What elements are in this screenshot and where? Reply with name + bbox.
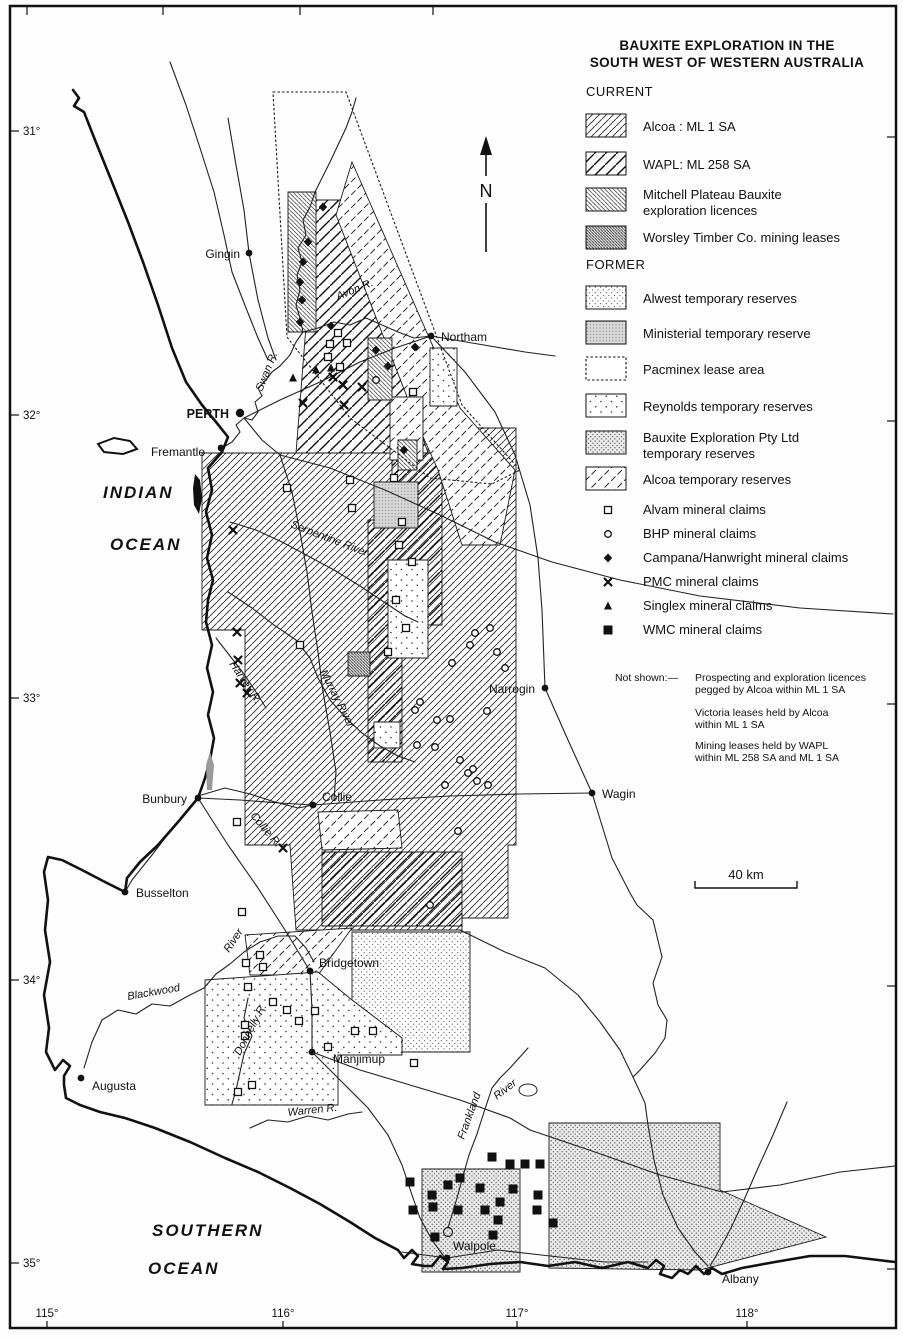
legend-item: Alcoa temporary reserves <box>586 467 792 490</box>
claim-symbol-wmc <box>506 1160 515 1169</box>
legend-claim-label: Campana/Hanwright mineral claims <box>643 550 849 565</box>
claim-symbol-alvam <box>385 649 392 656</box>
legend-item-label: Worsley Timber Co. mining leases <box>643 230 840 245</box>
legend-item-label: Ministerial temporary reserve <box>643 326 811 341</box>
claim-symbol-alvam <box>411 1060 418 1067</box>
legend-item: Alwest temporary reserves <box>586 286 797 309</box>
claim-symbol-alvam <box>235 1089 242 1096</box>
claim-symbol-wmc <box>456 1174 465 1183</box>
scale-bar-label: 40 km <box>728 867 763 882</box>
claim-symbol-alvam <box>409 559 416 566</box>
claim-symbol-bhp <box>474 778 481 785</box>
legend-item-label: Alcoa temporary reserves <box>643 472 792 487</box>
river-label: River <box>222 926 247 955</box>
claim-symbol-pmc <box>280 845 287 852</box>
scale-bar: 40 km <box>695 867 797 888</box>
claim-symbol-alvam <box>327 341 334 348</box>
claim-symbol-campana <box>604 554 612 563</box>
town-dot <box>246 250 253 257</box>
claim-symbol-bhp <box>494 649 501 656</box>
legend-claim-label: Alvam mineral claims <box>643 502 766 517</box>
legend-claim-label: BHP mineral claims <box>643 526 757 541</box>
claim-symbol-wmc <box>604 626 613 635</box>
claim-symbol-bhp <box>412 707 419 714</box>
claim-symbol-bhp <box>605 531 612 538</box>
town-dot <box>122 889 129 896</box>
legend-claim-label: PMC mineral claims <box>643 574 759 589</box>
claim-symbol-bhp <box>434 717 441 724</box>
town-dot <box>195 795 202 802</box>
legend-swatch <box>586 321 626 344</box>
ocean-label: OCEAN <box>148 1259 219 1278</box>
claim-symbol-wmc <box>476 1184 485 1193</box>
garden-island <box>193 474 202 514</box>
town-label: Bunbury <box>142 792 187 806</box>
legend-section-heading: FORMER <box>586 257 645 272</box>
legend-item-label: Pacminex lease area <box>643 362 765 377</box>
town-dot <box>542 685 549 692</box>
claim-symbol-alvam <box>396 542 403 549</box>
region-worsley-leases <box>348 652 370 676</box>
town-albany: Albany <box>705 1269 759 1286</box>
claim-symbol-wmc <box>549 1219 558 1228</box>
claim-symbol-bhp <box>467 642 474 649</box>
legend-item: Mitchell Plateau Bauxiteexploration lice… <box>586 187 782 218</box>
legend-item: Reynolds temporary reserves <box>586 394 813 417</box>
river-label: River <box>491 1076 520 1102</box>
claim-symbol-wmc <box>488 1153 497 1162</box>
legend-item-label: temporary reserves <box>643 446 755 461</box>
claim-symbol-bhp <box>373 377 380 384</box>
town-label: Busselton <box>136 886 189 900</box>
town-label: Wagin <box>602 787 636 801</box>
legend-item-label: Bauxite Exploration Pty Ltd <box>643 430 799 445</box>
claim-symbol-bhp <box>432 744 439 751</box>
legend-item: WAPL: ML 258 SA <box>586 152 751 175</box>
claim-symbol-wmc <box>428 1191 437 1200</box>
claim-symbol-alvam <box>393 597 400 604</box>
lon-label: 115° <box>36 1308 59 1320</box>
legend-swatch <box>586 114 626 137</box>
claim-symbol-alvam <box>370 1028 377 1035</box>
region-reynolds-patch-1 <box>430 348 457 406</box>
claim-symbol-bhp <box>485 782 492 789</box>
claim-symbol-bhp <box>414 742 421 749</box>
claim-symbol-bhp <box>470 766 477 773</box>
legend-swatch <box>586 226 626 249</box>
river-label: Frankland <box>456 1090 484 1141</box>
map-title: BAUXITE EXPLORATION IN THE SOUTH WEST OF… <box>590 38 864 70</box>
town-dot <box>307 968 314 975</box>
legend-claim-item: BHP mineral claims <box>605 526 757 541</box>
town-label: Bridgetown <box>319 956 379 970</box>
legend-item-label: WAPL: ML 258 SA <box>643 157 751 172</box>
river-swan-path <box>222 366 280 448</box>
town-dot <box>589 790 596 797</box>
town-perth: PERTH <box>187 407 245 421</box>
not-shown-note: Prospecting and exploration licences <box>695 672 866 684</box>
claim-symbol-wmc <box>444 1181 453 1190</box>
claim-symbol-alvam <box>239 909 246 916</box>
legend-swatch <box>586 357 626 380</box>
town-dot <box>218 445 225 452</box>
claim-symbol-bhp <box>447 716 454 723</box>
claim-symbol-alvam <box>347 477 354 484</box>
claim-symbol-wmc <box>536 1160 545 1169</box>
legend-item-label: Reynolds temporary reserves <box>643 399 813 414</box>
not-shown-label: Not shown:— <box>615 672 679 684</box>
claim-symbol-bhp <box>457 757 464 764</box>
legend-swatch <box>586 431 626 454</box>
claim-symbol-alvam <box>297 642 304 649</box>
town-wagin: Wagin <box>589 787 636 801</box>
lat-label: 31° <box>23 126 40 138</box>
title-line-1: BAUXITE EXPLORATION IN THE <box>619 38 834 53</box>
claim-symbol-alvam <box>245 984 252 991</box>
claim-symbol-alvam <box>257 952 264 959</box>
town-label: Fremantle <box>151 445 205 459</box>
lat-label: 32° <box>23 410 40 422</box>
claim-symbol-bhp <box>449 660 456 667</box>
claim-symbol-alvam <box>337 364 344 371</box>
region-alcoa-temp-collie <box>318 810 402 850</box>
legend-claim-item: WMC mineral claims <box>604 622 763 637</box>
claim-symbol-alvam <box>325 1044 332 1051</box>
not-shown-note: Victoria leases held by Alcoa <box>695 707 829 719</box>
claim-symbol-wmc <box>406 1178 415 1187</box>
claim-symbol-bhp <box>472 630 479 637</box>
ocean-label: OCEAN <box>110 535 181 554</box>
legend-item: Ministerial temporary reserve <box>586 321 811 344</box>
claim-symbol-alvam <box>234 819 241 826</box>
not-shown-note: within ML 1 SA <box>694 719 765 731</box>
town-label: Gingin <box>205 247 240 261</box>
claim-symbol-alvam <box>243 960 250 967</box>
town-label: Northam <box>441 330 487 344</box>
region-bepl-albany <box>549 1123 826 1270</box>
legend-swatch <box>586 286 626 309</box>
title-line-2: SOUTH WEST OF WESTERN AUSTRALIA <box>590 55 864 70</box>
legend-claim-item: Campana/Hanwright mineral claims <box>604 550 849 565</box>
lon-label: 117° <box>506 1308 529 1320</box>
claim-symbol-bhp <box>455 828 462 835</box>
claim-symbol-alvam <box>284 1007 291 1014</box>
legend-claim-item: Singlex mineral claims <box>604 598 773 613</box>
claim-symbol-wmc <box>431 1233 440 1242</box>
legend-item: Worsley Timber Co. mining leases <box>586 226 840 249</box>
legend-swatch <box>586 394 626 417</box>
legend-swatch <box>586 467 626 490</box>
not-shown-note: pegged by Alcoa within ML 1 SA <box>695 684 845 696</box>
legend-section-heading: CURRENT <box>586 84 653 99</box>
claim-symbol-bhp <box>417 699 424 706</box>
claim-symbol-wmc <box>429 1203 438 1212</box>
legend-item-label: Alcoa : ML 1 SA <box>643 119 736 134</box>
town-label: Narrogin <box>489 682 535 696</box>
legend: CURRENTAlcoa : ML 1 SAWAPL: ML 258 SAMit… <box>586 84 866 764</box>
legend-claim-label: WMC mineral claims <box>643 622 763 637</box>
north-arrow-label: N <box>480 181 493 201</box>
town-augusta: Augusta <box>78 1075 137 1093</box>
claim-symbol-alvam <box>312 1008 319 1015</box>
region-ministerial-reserve <box>374 482 418 528</box>
lon-label: 116° <box>272 1308 295 1320</box>
claim-symbol-bhp <box>487 625 494 632</box>
claim-symbol-singlex <box>289 374 297 382</box>
not-shown-note: within ML 258 SA and ML 1 SA <box>694 752 839 764</box>
legend-item: Bauxite Exploration Pty Ltdtemporary res… <box>586 430 799 461</box>
town-label: Albany <box>722 1272 759 1286</box>
town-dot <box>309 1049 316 1056</box>
lake-muir <box>519 1084 537 1096</box>
claim-symbol-wmc <box>494 1216 503 1225</box>
claim-symbol-alvam <box>325 354 332 361</box>
town-narrogin: Narrogin <box>489 682 548 696</box>
claim-symbol-alvam <box>352 1028 359 1035</box>
ocean-label: SOUTHERN <box>152 1221 263 1240</box>
river-label: Swan R. <box>254 350 281 393</box>
legend-claim-label: Singlex mineral claims <box>643 598 773 613</box>
claim-symbol-wmc <box>409 1206 418 1215</box>
legend-item: Alcoa : ML 1 SA <box>586 114 736 137</box>
map-figure: GinginNorthamPERTHFremantleNarroginWagin… <box>0 0 903 1338</box>
claim-symbol-alvam <box>344 340 351 347</box>
claim-symbol-wmc <box>509 1185 518 1194</box>
claim-symbol-singlex <box>604 602 612 610</box>
claim-symbol-alvam <box>335 330 342 337</box>
road-collie-southeast <box>460 930 633 1077</box>
claim-symbol-alvam <box>349 505 356 512</box>
claim-symbol-bhp <box>427 902 434 909</box>
town-dot <box>444 1255 451 1262</box>
town-dot <box>236 409 244 417</box>
claim-symbol-alvam <box>270 999 277 1006</box>
claim-symbol-alvam <box>249 1082 256 1089</box>
claim-symbol-wmc <box>481 1206 490 1215</box>
claim-symbol-bhp <box>502 665 509 672</box>
legend-swatch <box>586 188 626 211</box>
region-wapl-ml258-south <box>322 852 462 926</box>
scale-bar-line <box>695 881 797 888</box>
claim-symbol-wmc <box>533 1206 542 1215</box>
claim-symbol-wmc <box>454 1206 463 1215</box>
town-dot <box>78 1075 85 1082</box>
claim-symbol-alvam <box>260 964 267 971</box>
lat-label: 34° <box>23 975 40 987</box>
legend-item-label: Mitchell Plateau Bauxite <box>643 187 782 202</box>
north-arrow: N <box>480 136 493 252</box>
bauxite-exploration-map: GinginNorthamPERTHFremantleNarroginWagin… <box>0 0 903 1338</box>
river-moore-path <box>170 62 268 360</box>
legend-item: Pacminex lease area <box>586 357 765 380</box>
claim-symbol-bhp <box>442 782 449 789</box>
town-label: Manjimup <box>333 1052 385 1066</box>
claim-symbol-alvam <box>284 485 291 492</box>
ocean-label: INDIAN <box>103 483 174 502</box>
lat-label: 35° <box>23 1258 40 1270</box>
claim-symbol-alvam <box>410 389 417 396</box>
north-arrow-head-icon <box>480 136 492 155</box>
town-label: Augusta <box>92 1079 136 1093</box>
town-dot <box>310 802 317 809</box>
claim-symbol-pmc <box>605 579 612 586</box>
town-label: Walpole <box>453 1239 496 1253</box>
legend-item-label: Alwest temporary reserves <box>643 291 797 306</box>
town-dot <box>428 333 435 340</box>
claim-symbol-wmc <box>534 1191 543 1200</box>
town-gingin: Gingin <box>205 247 252 261</box>
claim-symbol-wmc <box>496 1198 505 1207</box>
claim-symbol-alvam <box>403 625 410 632</box>
claim-symbol-alvam <box>399 519 406 526</box>
claim-symbol-alvam <box>605 507 612 514</box>
town-dot <box>705 1269 712 1276</box>
legend-item-label: exploration licences <box>643 203 758 218</box>
town-busselton: Busselton <box>122 886 189 900</box>
legend-swatch <box>586 152 626 175</box>
lat-label: 33° <box>23 693 40 705</box>
claim-symbol-wmc <box>521 1160 530 1169</box>
legend-claim-item: Alvam mineral claims <box>605 502 767 517</box>
claim-symbol-alvam <box>391 475 398 482</box>
town-label: Collie <box>322 790 352 804</box>
not-shown-note: Mining leases held by WAPL <box>695 740 828 752</box>
leschenault-inlet <box>206 752 214 790</box>
lon-label: 118° <box>736 1308 759 1320</box>
rottnest-island <box>98 438 137 454</box>
town-label: PERTH <box>187 407 229 421</box>
river-label: Blackwood <box>126 982 181 1003</box>
claim-symbol-bhp <box>484 708 491 715</box>
claim-symbol-alvam <box>296 1018 303 1025</box>
